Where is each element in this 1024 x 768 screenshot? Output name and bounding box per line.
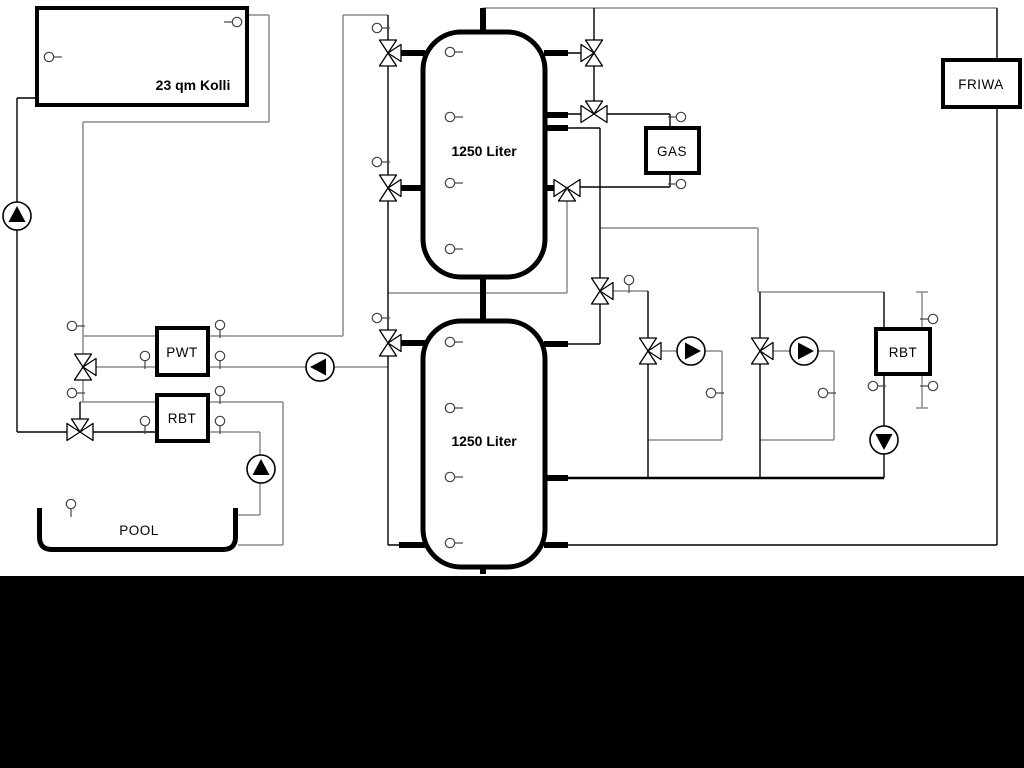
pump-heating-circuit-2 [790,337,818,365]
pump-solar [3,202,31,230]
pump-rbt-right [870,426,898,454]
gas-label: GAS [657,144,687,159]
friwa-label: FRIWA [958,77,1004,92]
collector-label: 23 qm Kolli [156,77,231,93]
pool-label: POOL [119,523,159,538]
pump-pwt [306,353,334,381]
schematic-canvas: 23 qm Kolli 1250 Liter 1250 Liter PWT RB… [0,0,1024,768]
bottom-black-bar [0,576,1024,768]
pump-heating-circuit-1 [677,337,705,365]
hydraulic-schematic-page: 23 qm Kolli 1250 Liter 1250 Liter PWT RB… [0,0,1024,768]
tank1-label: 1250 Liter [451,143,517,159]
pwt-label: PWT [166,345,198,360]
rbt-pool-label: RBT [168,411,197,426]
tank2-label: 1250 Liter [451,433,517,449]
pump-pool [247,455,275,483]
rbt-right-label: RBT [889,345,918,360]
